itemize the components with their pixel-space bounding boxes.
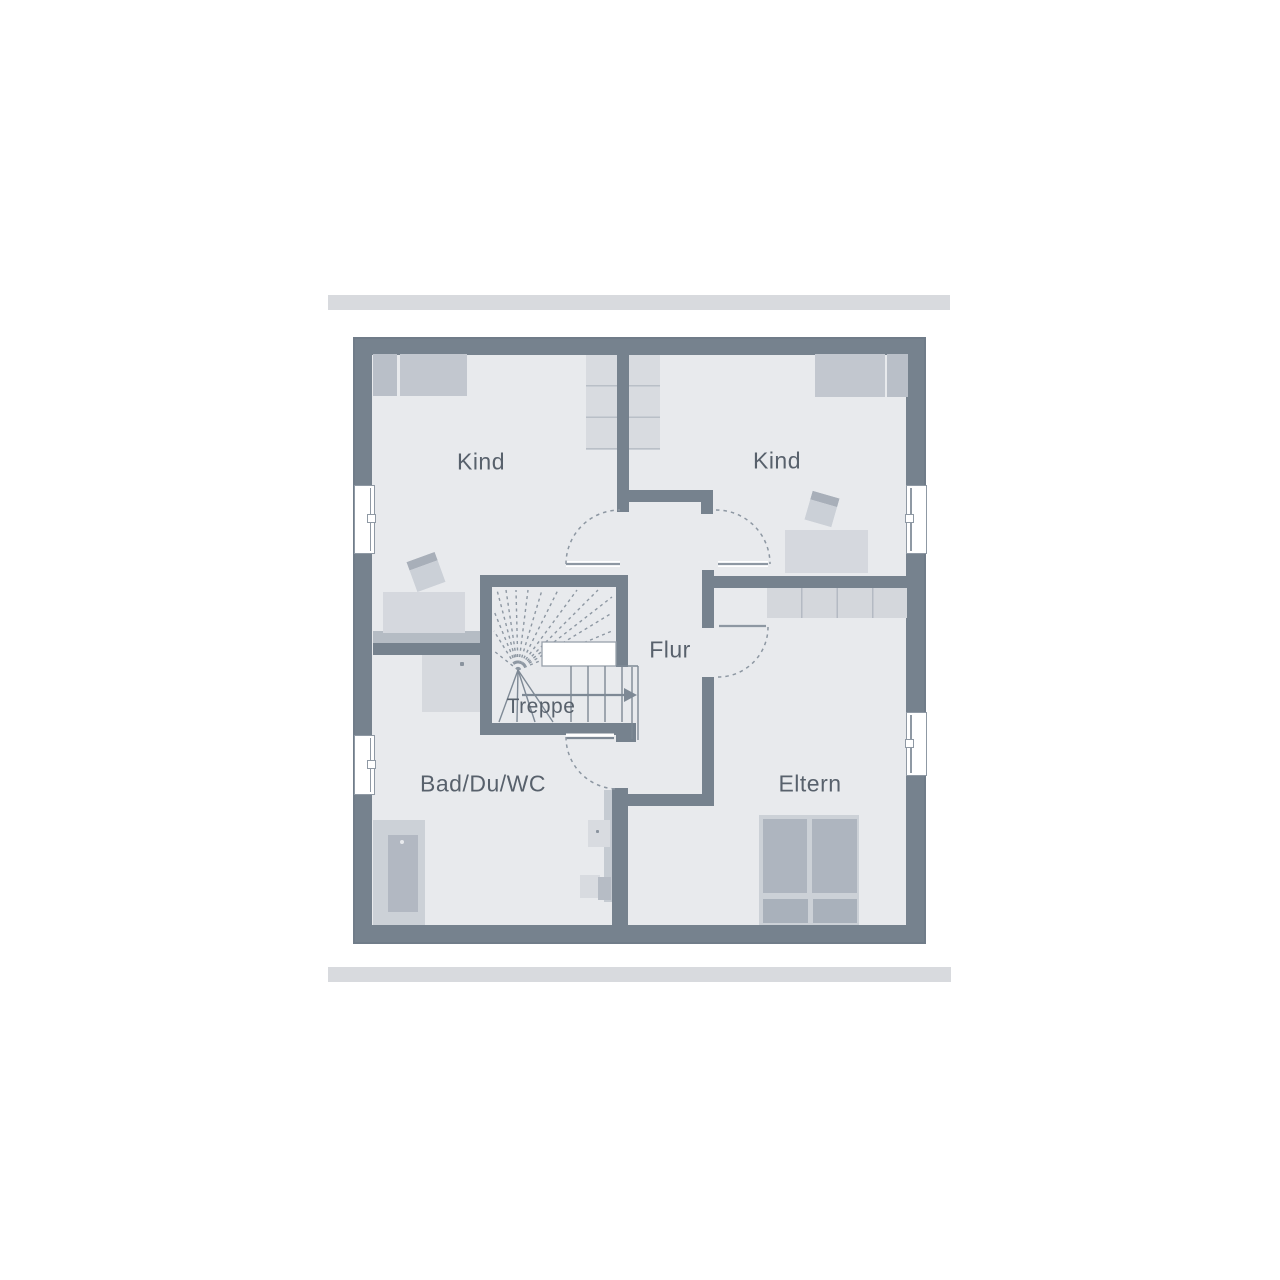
bed <box>400 354 467 396</box>
wall-stair-top <box>480 575 628 587</box>
faucet-icon <box>460 662 464 666</box>
wall-stair-step <box>616 723 636 742</box>
wall-flur-right-upper <box>702 570 714 628</box>
window-handle <box>905 739 914 748</box>
bed-pillow <box>813 899 857 923</box>
wall-stair-bottom <box>480 723 622 735</box>
wardrobe <box>629 355 660 450</box>
wardrobe <box>586 355 617 450</box>
wall-stair-right <box>616 587 628 667</box>
toilet <box>588 820 610 847</box>
toilet-flush-icon <box>596 830 599 833</box>
room-label-kind-left: Kind <box>457 449 505 476</box>
room-label-kind-right: Kind <box>753 448 801 475</box>
wall-kind-divider <box>617 355 629 512</box>
window-handle <box>367 514 376 523</box>
roof-edge-bottom <box>328 967 951 982</box>
washbasin-cabinet <box>598 877 611 900</box>
wall-flur-stub-return <box>701 502 713 514</box>
window-handle <box>367 760 376 769</box>
floor-plan-page: Kind Kind Flur Treppe Bad/Du/WC Eltern <box>0 0 1280 1280</box>
wall-flur-stub <box>617 490 713 502</box>
sideboard <box>767 588 907 618</box>
window-icon <box>906 485 927 554</box>
desk <box>785 530 868 573</box>
wall-flur-right-lower <box>702 677 714 795</box>
wall-flur-eltern <box>628 794 714 806</box>
shower-tray <box>388 835 418 912</box>
room-label-treppe: Treppe <box>507 695 576 719</box>
room-label-bad: Bad/Du/WC <box>420 771 546 798</box>
wall-bad-eltern <box>612 788 628 925</box>
mattress <box>812 819 857 893</box>
mattress <box>763 819 807 893</box>
double-bed <box>759 815 859 925</box>
roof-edge-top <box>328 295 950 310</box>
window-icon <box>354 735 375 795</box>
wall-kind-right-bottom <box>706 576 906 588</box>
vanity <box>422 655 480 712</box>
wall-bad-top <box>373 643 482 655</box>
window-icon <box>354 485 375 554</box>
shower-drain-icon <box>400 840 404 844</box>
window-icon <box>906 712 927 776</box>
bed-pillow <box>887 354 908 397</box>
bed-pillow <box>373 354 397 396</box>
room-label-flur: Flur <box>649 637 691 664</box>
room-label-eltern: Eltern <box>778 771 841 798</box>
bed-pillow <box>763 899 808 923</box>
window-handle <box>905 514 914 523</box>
washbasin <box>580 875 600 898</box>
bed <box>815 354 885 397</box>
desk <box>383 592 465 633</box>
wall-stair-left <box>480 575 492 735</box>
shower <box>373 820 425 925</box>
